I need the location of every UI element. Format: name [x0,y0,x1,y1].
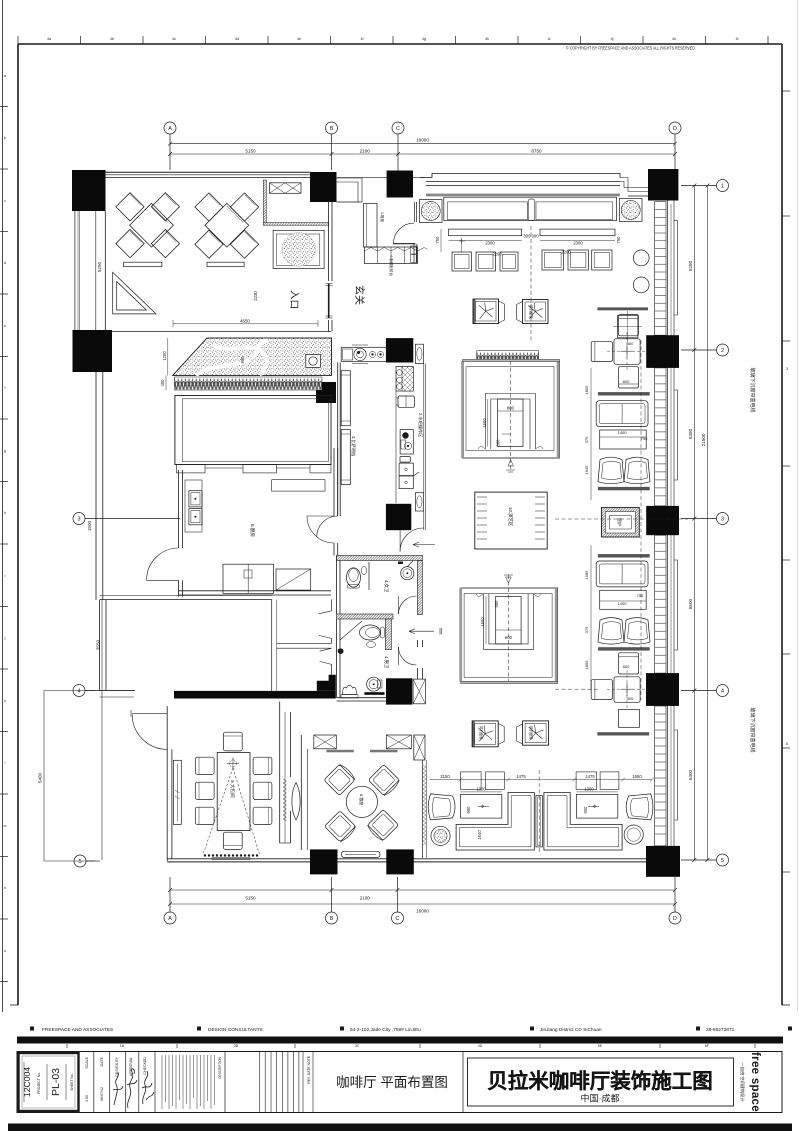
svg-text:C: C [396,126,400,132]
svg-text:1645: 1645 [584,465,589,475]
svg-text:06/07/12: 06/07/12 [100,1087,104,1101]
svg-text:6: 6 [786,742,788,746]
svg-text:中国·成都: 中国·成都 [581,1093,620,1104]
svg-text:4.衣帽柜前台: 4.衣帽柜前台 [389,255,394,276]
svg-text:1A: 1A [120,1044,125,1048]
svg-text:风机盘管: 风机盘管 [529,305,534,319]
svg-text:900: 900 [583,806,588,814]
svg-text:玻璃下沉窗帘盒电线: 玻璃下沉窗帘盒电线 [749,367,756,412]
svg-text:2B: 2B [234,1044,239,1048]
svg-text:8.散座: 8.散座 [359,794,365,805]
svg-text:1540: 1540 [477,830,482,840]
svg-text:4D: 4D [478,1044,483,1048]
svg-text:PL-03: PL-03 [50,1068,62,1096]
svg-text:4i: 4i [548,37,551,41]
svg-text:16000: 16000 [416,138,429,143]
svg-text:8750: 8750 [531,148,542,153]
svg-text:1500: 1500 [480,617,485,627]
svg-text:贝拉米咖啡厅装饰施工图: 贝拉米咖啡厅装饰施工图 [487,1069,713,1093]
svg-text:900: 900 [466,806,471,814]
svg-text:4c: 4c [172,37,176,41]
svg-text:e: e [4,324,6,328]
svg-text:DATE: DATE [100,1056,104,1066]
svg-text:4f: 4f [361,37,364,41]
svg-text:755: 755 [637,593,644,598]
svg-text:D: D [673,916,677,922]
svg-text:free space: free space [749,1052,761,1112]
svg-text:1400: 1400 [618,430,628,435]
svg-text:REV. DATE NOTE: REV. DATE NOTE [307,1055,311,1083]
svg-text:1895: 1895 [584,660,589,670]
svg-text:风机盘管: 风机盘管 [529,726,534,740]
svg-text:4d: 4d [235,37,239,41]
svg-text:375: 375 [584,436,589,443]
svg-text:SCALE: SCALE [85,1056,89,1068]
svg-text:4650: 4650 [240,319,250,324]
svg-text:5150: 5150 [245,896,256,901]
svg-text:21500: 21500 [701,433,706,446]
svg-text:2100: 2100 [360,896,371,901]
svg-text:2200: 2200 [492,252,502,257]
svg-text:5500: 5500 [688,598,693,609]
svg-text:4k: 4k [672,37,676,41]
svg-text:5250: 5250 [97,261,102,272]
svg-text:D: D [673,126,677,132]
svg-text:JinJiang District CD SiChuan: JinJiang District CD SiChuan [540,1027,602,1033]
svg-text:5350: 5350 [688,428,693,439]
svg-text:4e: 4e [297,37,301,41]
svg-text:400: 400 [627,341,634,346]
svg-text:CHECKED: CHECKED [143,1057,147,1075]
svg-text:4: 4 [78,689,81,695]
svg-text:400: 400 [160,379,165,387]
svg-text:o: o [4,949,6,953]
svg-text:3: 3 [721,517,724,523]
svg-text:5400: 5400 [38,772,43,783]
svg-text:h: h [4,511,6,515]
svg-text:1475: 1475 [585,774,595,779]
svg-text:© COPYRIGHT BY FREESPACE AND: © COPYRIGHT BY FREESPACE AND ASSOCIATES … [566,46,696,51]
svg-text:A: A [168,126,172,132]
svg-text:1400: 1400 [618,601,628,606]
svg-text:755: 755 [641,436,648,441]
svg-text:A: A [168,916,172,922]
svg-text:PROJECT No.: PROJECT No. [37,1072,41,1094]
svg-text:800: 800 [623,379,630,384]
svg-text:5: 5 [721,858,724,864]
svg-text:4h: 4h [485,37,489,41]
svg-text:d: d [4,261,6,265]
svg-text:风机盘管: 风机盘管 [479,726,484,740]
svg-text:1475: 1475 [516,774,526,779]
svg-text:800: 800 [623,664,630,669]
svg-text:375: 375 [584,626,589,633]
svg-text:900: 900 [240,356,245,364]
svg-text:4j: 4j [611,37,614,41]
svg-text:750: 750 [616,236,621,244]
svg-text:c: c [4,199,6,203]
svg-text:6.厨房: 6.厨房 [249,524,256,537]
svg-text:1805: 1805 [584,385,589,395]
svg-text:n: n [4,886,6,890]
svg-text:3: 3 [78,517,81,523]
svg-text:2200: 2200 [561,250,571,255]
svg-text:5150: 5150 [245,148,256,153]
svg-text:SHEET No.: SHEET No. [70,1073,74,1091]
svg-text:FREESPACE AND ASSOCIATES: FREESPACE AND ASSOCIATES [42,1027,113,1033]
svg-text:4.女卫: 4.女卫 [383,580,390,593]
svg-text:1200: 1200 [162,351,167,361]
svg-text:5250: 5250 [688,260,693,271]
svg-text:300 300: 300 300 [523,234,539,239]
svg-text:10.演艺区: 10.演艺区 [507,507,514,527]
svg-text:400: 400 [627,696,634,701]
svg-text:12C004: 12C004 [22,1067,32,1097]
svg-text:1:60: 1:60 [85,1095,89,1102]
svg-text:500: 500 [494,600,499,608]
svg-text:B: B [330,916,334,922]
svg-text:一自由 空间建筑设计: 一自由 空间建筑设计 [739,1063,746,1102]
svg-text:j: j [4,636,6,640]
svg-text:3: 3 [786,367,788,371]
svg-text:500: 500 [496,439,501,447]
svg-text:DESCRIPTION: DESCRIPTION [218,1056,222,1078]
svg-text:b: b [4,136,6,140]
svg-text:3.比萨明档: 3.比萨明档 [350,436,357,456]
svg-text:k: k [4,699,6,703]
svg-text:800: 800 [505,635,513,640]
svg-text:5E: 5E [598,1044,603,1048]
svg-text:a: a [4,74,6,78]
svg-text:g: g [4,449,6,453]
svg-text:5: 5 [79,859,82,865]
svg-text:DESIGN CONSULTANTS: DESIGN CONSULTANTS [208,1027,263,1033]
svg-text:咖啡厅 平面布置图: 咖啡厅 平面布置图 [336,1075,448,1090]
svg-text:2.水吧操作区: 2.水吧操作区 [417,413,424,437]
svg-text:2150: 2150 [440,774,450,779]
svg-text:1300: 1300 [584,787,594,792]
svg-text:1.鞋柜: 1.鞋柜 [380,212,385,223]
svg-text:16000: 16000 [416,909,429,914]
svg-text:m: m [4,824,7,828]
svg-text:2230: 2230 [253,291,258,301]
svg-text:4b: 4b [110,37,114,41]
svg-text:4l: 4l [736,37,739,41]
svg-text:6F: 6F [705,1044,709,1048]
svg-text:玻璃下沉窗帘盒电线: 玻璃下沉窗帘盒电线 [749,707,756,752]
svg-text:2100: 2100 [360,148,371,153]
svg-text:4a: 4a [47,37,51,41]
svg-text:C: C [396,916,400,922]
svg-text:玄关: 玄关 [353,285,366,305]
svg-text:f: f [5,386,6,390]
svg-text:1650: 1650 [632,774,642,779]
svg-text:750: 750 [435,236,440,244]
svg-text:1: 1 [721,184,724,190]
svg-text:3C: 3C [355,1044,360,1048]
svg-text:2: 2 [721,348,724,354]
svg-text:54-2-102,Jade City ,759# LinJi: 54-2-102,Jade City ,759# LinJiEu [350,1027,421,1033]
svg-text:1500: 1500 [482,418,487,428]
svg-text:4g: 4g [422,37,426,41]
svg-text:1300: 1300 [476,787,486,792]
svg-text:4: 4 [721,689,724,695]
svg-text:28-85272871: 28-85272871 [706,1027,735,1033]
svg-text:5400: 5400 [688,769,693,780]
svg-text:B: B [330,126,334,132]
svg-text:入口: 入口 [288,290,299,309]
svg-text:1500: 1500 [87,520,92,531]
svg-text:1585: 1585 [584,570,589,580]
svg-text:2300: 2300 [485,241,495,246]
svg-text:9.大包间: 9.大包间 [229,780,236,798]
svg-text:2300: 2300 [573,241,583,246]
